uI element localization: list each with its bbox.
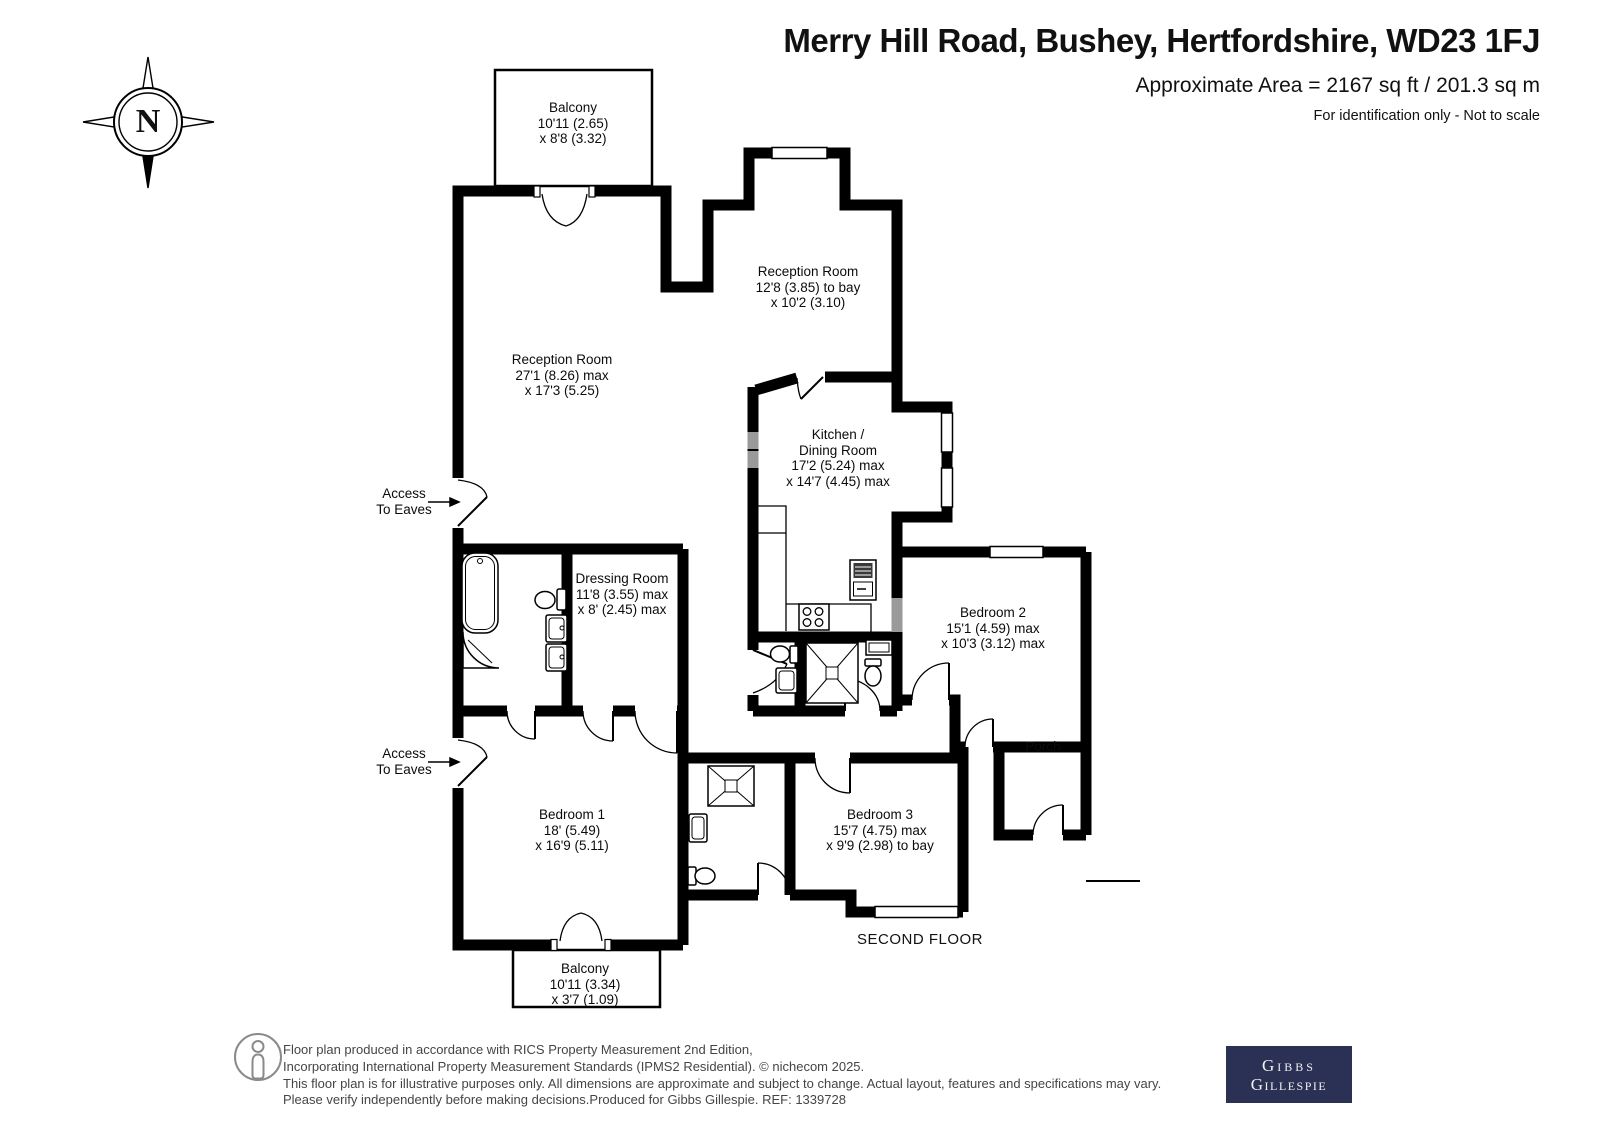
page-title: Merry Hill Road, Bushey, Hertfordshire, …	[783, 22, 1540, 60]
floorplan-page: Merry Hill Road, Bushey, Hertfordshire, …	[0, 0, 1600, 1131]
approximate-area: Approximate Area = 2167 sq ft / 201.3 sq…	[1136, 74, 1541, 98]
sink-2-tap	[560, 655, 564, 659]
bath-tap	[478, 559, 483, 564]
room-label-porch: Porch	[1025, 739, 1060, 755]
wall-recess-1	[748, 432, 759, 449]
sink-1-tap	[560, 626, 564, 630]
room-label-balcony-top: Balcony 10'11 (2.65) x 8'8 (3.32)	[538, 100, 609, 147]
bedroom3-bay-window	[875, 907, 958, 918]
toilet-cistern	[557, 589, 566, 610]
arrow-head-2	[450, 758, 459, 766]
toilet-bowl	[535, 592, 555, 609]
room-label-bedroom-1: Bedroom 1 18' (5.49) x 16'9 (5.11)	[535, 807, 609, 854]
ensuite-bowl	[695, 868, 715, 884]
wc2-sink-basin	[869, 643, 889, 652]
compass-north-label: N	[136, 103, 161, 141]
kitchen-fixtures	[758, 506, 876, 637]
wc2-bowl	[865, 666, 881, 686]
room-label-reception-1: Reception Room 27'1 (8.26) max x 17'3 (5…	[512, 352, 613, 399]
agency-logo-line1: Gibbs	[1262, 1056, 1316, 1075]
bedroom2-recess	[892, 598, 903, 632]
bathroom-fixtures	[462, 553, 567, 671]
floor-name-label: SECOND FLOOR	[857, 931, 983, 948]
ensuite-drain	[725, 780, 737, 792]
wc1-bowl	[771, 646, 790, 662]
wall-recess-2	[748, 451, 759, 468]
shower-drain	[826, 667, 838, 679]
bathtub-inner	[466, 557, 495, 630]
ensuite-sink-basin	[692, 817, 704, 839]
disclaimer-text: Floor plan produced in accordance with R…	[283, 1042, 1161, 1109]
room-label-bedroom-2: Bedroom 2 15'1 (4.59) max x 10'3 (3.12) …	[941, 605, 1045, 652]
room-label-balcony-bottom: Balcony 10'11 (3.34) x 3'7 (1.09)	[550, 961, 621, 1008]
bay-window	[772, 148, 827, 159]
wc1-sink-basin	[779, 671, 794, 690]
access-to-eaves-1: Access To Eaves	[376, 486, 432, 517]
person-icon	[235, 1034, 281, 1080]
kitchen-window-2	[942, 468, 953, 507]
agency-logo: Gibbs Gillespie	[1226, 1046, 1352, 1103]
ensuite-fixtures	[688, 766, 754, 885]
floor-plan-drawing	[0, 0, 1600, 1131]
room-label-reception-2: Reception Room 12'8 (3.85) to bay x 10'2…	[756, 264, 861, 311]
scale-note: For identification only - Not to scale	[1314, 108, 1540, 124]
wc1-cistern	[790, 646, 798, 663]
hob	[799, 604, 829, 630]
wc2-cistern	[865, 659, 881, 666]
corner-shower	[463, 632, 499, 668]
bedroom2-window	[990, 547, 1043, 558]
arrow-head-1	[450, 498, 459, 506]
room-label-dressing: Dressing Room 11'8 (3.55) max x 8' (2.45…	[575, 571, 668, 618]
kitchen-window-1	[942, 413, 953, 452]
agency-logo-line2: Gillespie	[1251, 1075, 1327, 1094]
room-label-bedroom-3: Bedroom 3 15'7 (4.75) max x 9'9 (2.98) t…	[826, 807, 934, 854]
room-label-kitchen: Kitchen / Dining Room 17'2 (5.24) max x …	[786, 427, 890, 489]
access-to-eaves-2: Access To Eaves	[376, 746, 432, 777]
